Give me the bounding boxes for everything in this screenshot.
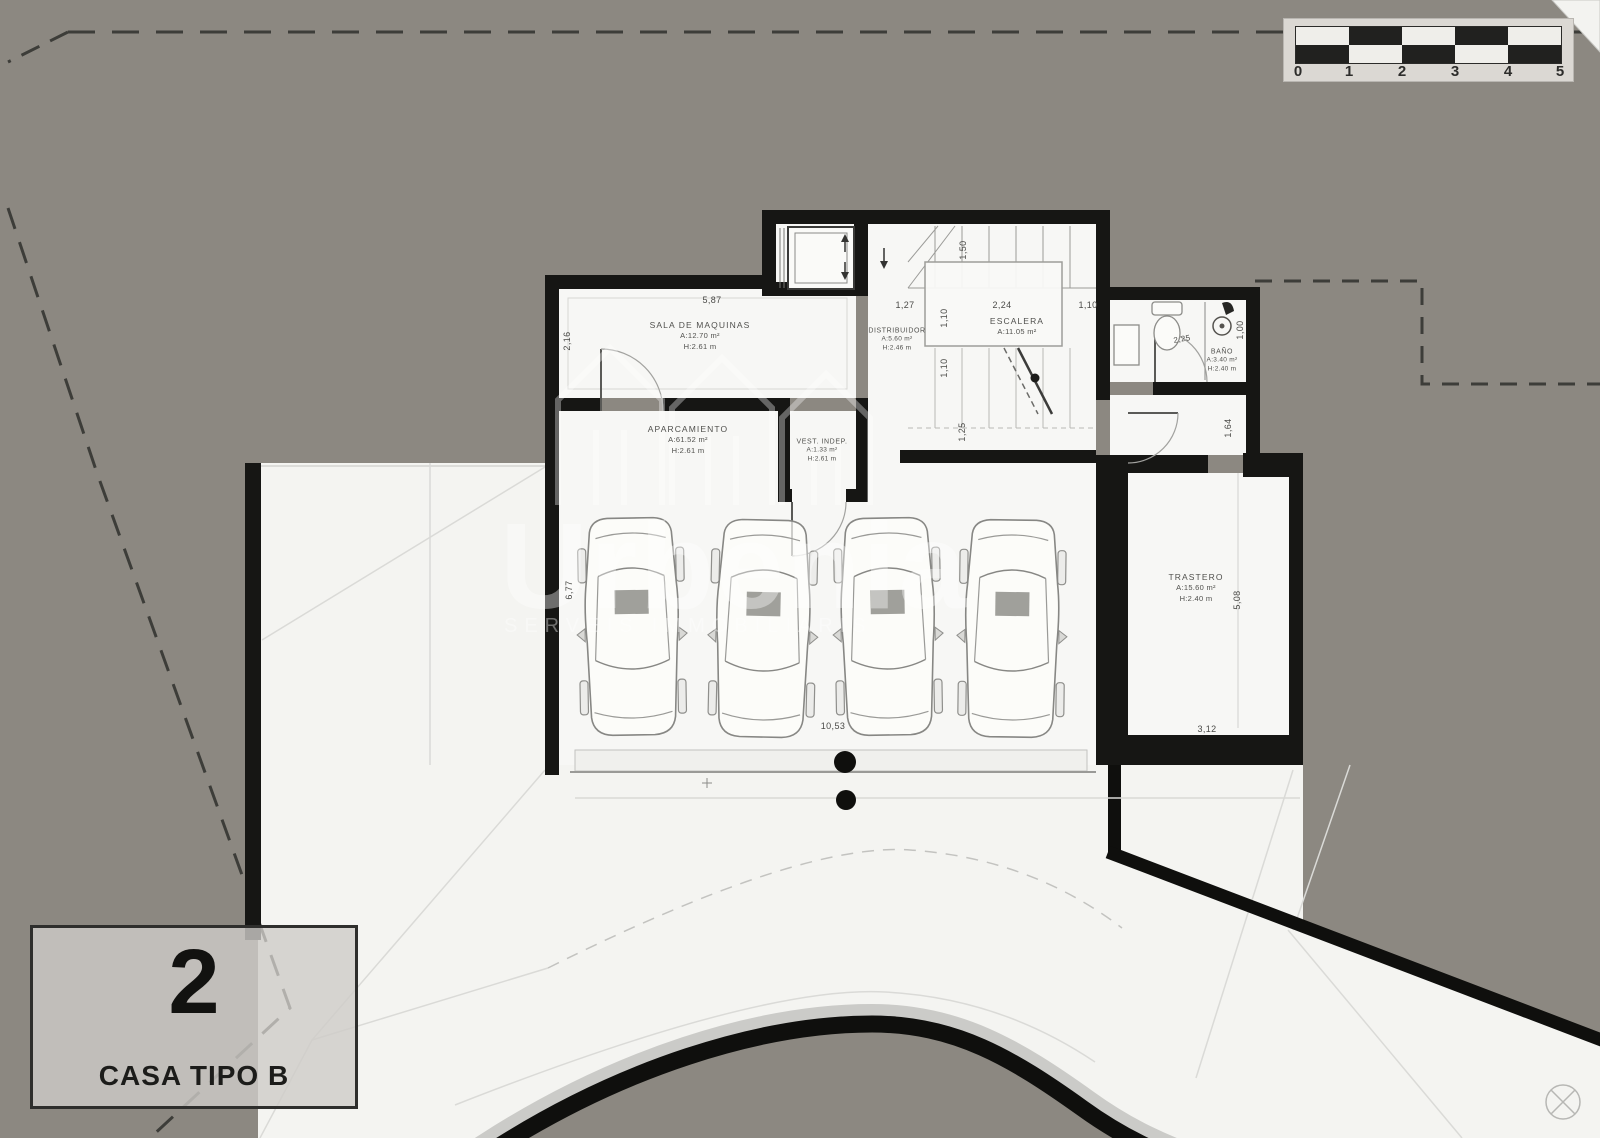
house-number: 2 — [33, 936, 355, 1028]
road-edge-stub — [1108, 765, 1121, 857]
room-label-vest: VEST. INDEP. A:1.33 m² H:2.61 m — [796, 438, 847, 465]
room-label-trastero: TRASTERO A:15.60 m² H:2.40 m — [1168, 572, 1223, 604]
dim-label: 1,27 — [895, 300, 914, 310]
elevator-icon — [780, 227, 854, 289]
dim-label: 1,50 — [958, 240, 968, 259]
house-type-label: CASA TIPO B — [33, 1060, 355, 1092]
room-label-bano: BAÑO A:3.40 m² H:2.40 m — [1207, 348, 1238, 375]
watermark-tagline: SERVEIS IMMOBILIARIS — [504, 615, 873, 638]
dim-label: 2,24 — [992, 300, 1011, 310]
room-label-escalera: ESCALERA A:11.05 m² — [990, 316, 1044, 338]
dim-label: 1,64 — [1223, 418, 1233, 437]
room-label-sala: SALA DE MAQUINAS A:12.70 m² H:2.61 m — [650, 320, 751, 352]
scale-bar-checker — [1295, 26, 1562, 64]
scale-number: 0 — [1294, 63, 1302, 80]
dim-label: 5,08 — [1232, 590, 1242, 609]
scale-number: 2 — [1398, 63, 1406, 80]
dim-label: 10,53 — [821, 721, 846, 731]
dim-label: 3,12 — [1197, 724, 1216, 734]
dim-label: 1,25 — [957, 422, 967, 441]
watermark-brand: Urbenia — [500, 505, 968, 627]
scale-number: 1 — [1345, 63, 1353, 80]
dim-label: 1,10 — [939, 308, 949, 327]
scale-number: 5 — [1556, 63, 1564, 80]
dim-label: 6,77 — [564, 580, 574, 599]
dim-label: 1,10 — [939, 358, 949, 377]
room-label-aparcamiento: APARCAMIENTO A:61.52 m² H:2.61 m — [648, 424, 728, 456]
bollard-dot — [834, 751, 856, 773]
floor-plan-sheet: Urbenia SERVEIS IMMOBILIARIS SALA DE MAQ… — [0, 0, 1600, 1138]
dim-label: 2,16 — [562, 331, 572, 350]
sink-icon — [1114, 325, 1139, 365]
scale-bar: 0 1 2 3 4 5 — [1283, 18, 1574, 82]
scale-number: 4 — [1504, 63, 1512, 80]
room-label-distribuidor: DISTRIBUIDOR A:5.60 m² H:2.46 m — [868, 327, 925, 354]
dim-label: 1,10 — [1078, 300, 1097, 310]
bollard-dot — [836, 790, 856, 810]
title-box: 2 CASA TIPO B — [30, 925, 358, 1109]
dim-label: 1,00 — [1235, 320, 1245, 339]
scale-number: 3 — [1451, 63, 1459, 80]
dim-label: 5,87 — [702, 295, 721, 305]
